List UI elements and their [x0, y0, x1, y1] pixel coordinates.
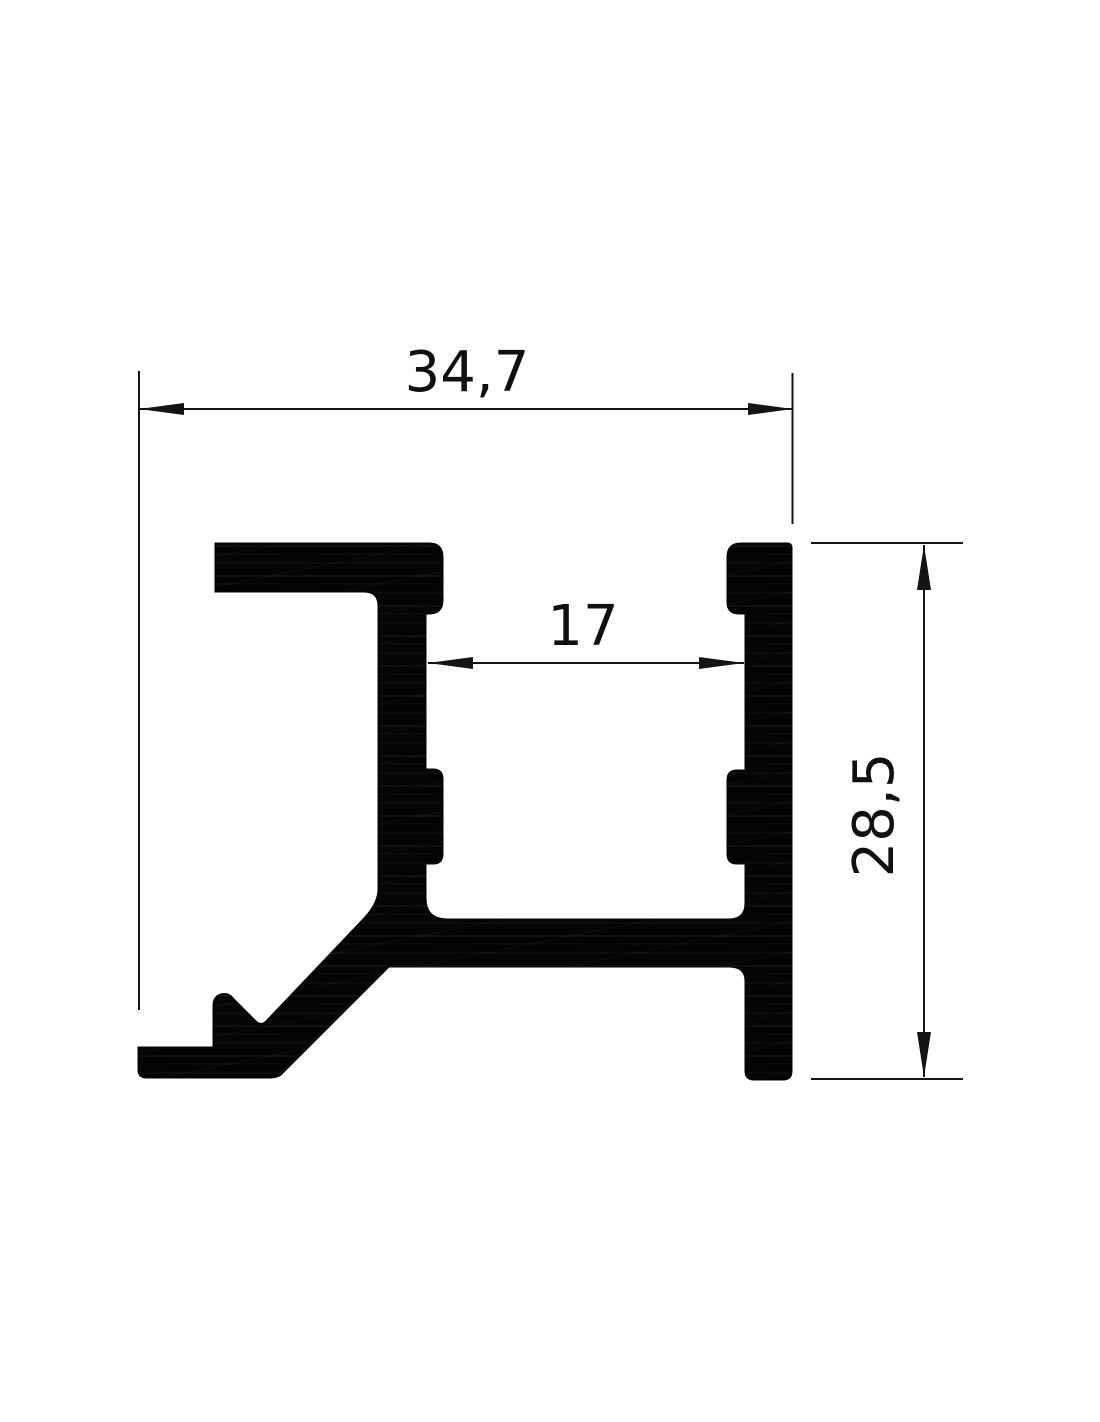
technical-drawing: 34,7 17 28,5	[0, 0, 1100, 1422]
profile-cross-section	[138, 543, 792, 1080]
arrowhead-height-bottom	[917, 1032, 931, 1077]
dimension-label-inner-gap: 17	[547, 594, 618, 659]
arrowhead-height-top	[917, 545, 931, 590]
arrowhead-width-left	[139, 403, 184, 415]
dimension-label-width: 34,7	[405, 340, 530, 405]
arrowhead-width-right	[748, 403, 793, 415]
drawing-canvas: 34,7 17 28,5	[0, 0, 1100, 1422]
dimension-width	[139, 371, 793, 1010]
dimension-label-height: 28,5	[842, 753, 907, 878]
arrowhead-inner-left	[428, 657, 473, 669]
arrowhead-inner-right	[699, 657, 744, 669]
